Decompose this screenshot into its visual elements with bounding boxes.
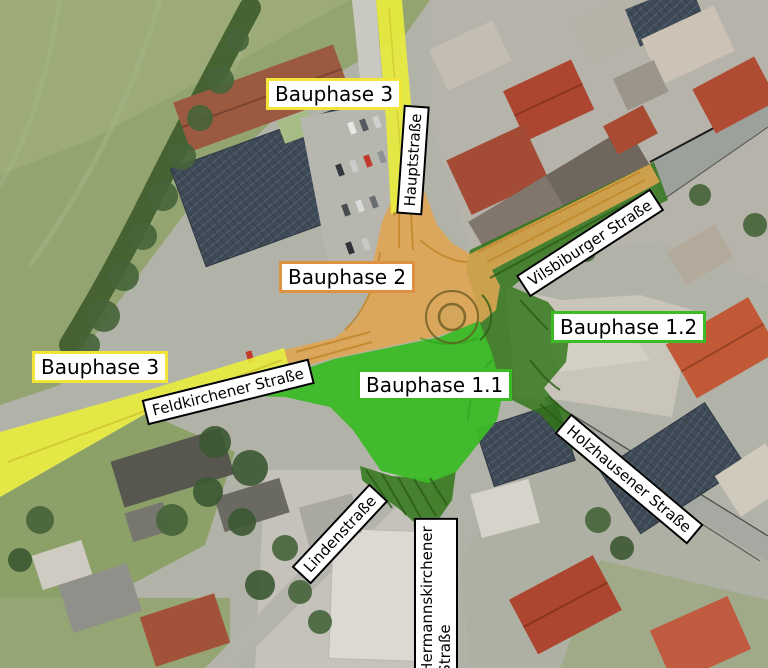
label-hauptstrasse-text: Hauptstraße xyxy=(401,113,425,207)
label-hermannskirchener-strasse-line2: Straße xyxy=(436,526,454,668)
label-hermannskirchener-strasse-line1: Hermannskirchener xyxy=(418,526,436,668)
label-bauphase-3-left: Bauphase 3 xyxy=(32,351,168,383)
label-bauphase-3-top: Bauphase 3 xyxy=(266,78,402,110)
label-bauphase-3-top-text: Bauphase 3 xyxy=(275,82,393,106)
label-hermannskirchener-strasse: Hermannskirchener Straße xyxy=(414,518,458,668)
label-bauphase-2: Bauphase 2 xyxy=(279,261,415,293)
label-bauphase-1-1: Bauphase 1.1 xyxy=(357,369,512,401)
label-bauphase-3-left-text: Bauphase 3 xyxy=(41,355,159,379)
label-bauphase-2-text: Bauphase 2 xyxy=(288,265,406,289)
label-bauphase-1-2-text: Bauphase 1.2 xyxy=(560,315,697,339)
construction-phases-map: Bauphase 3 Hauptstraße Bauphase 2 Vilsbi… xyxy=(0,0,768,668)
label-bauphase-1-2: Bauphase 1.2 xyxy=(551,311,706,343)
label-bauphase-1-1-text: Bauphase 1.1 xyxy=(366,373,503,397)
